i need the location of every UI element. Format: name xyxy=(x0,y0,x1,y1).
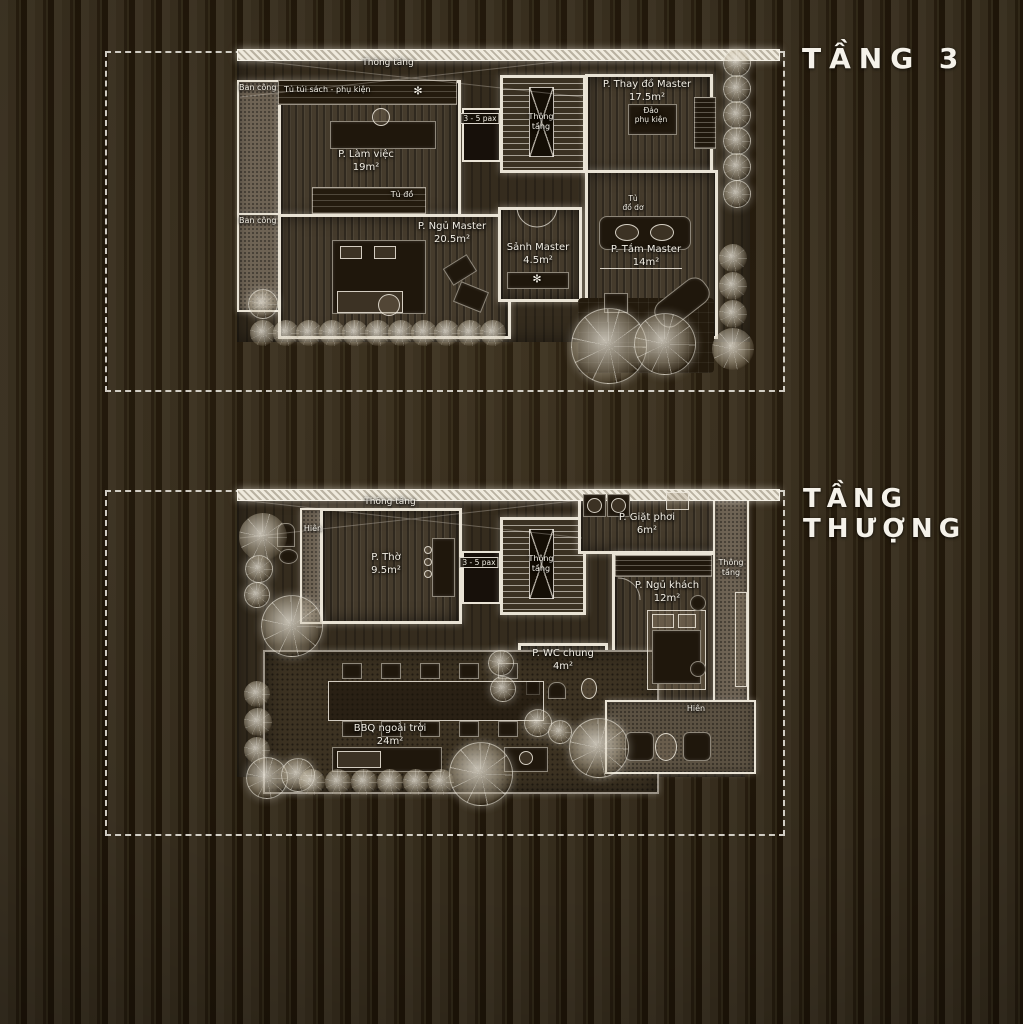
ceiling-fan-icon: ✻ xyxy=(413,85,422,98)
roof-title-line1: TẦNG xyxy=(803,484,966,514)
bush xyxy=(723,101,751,129)
double-door-arc xyxy=(517,207,557,227)
room-altar-name: P. Thờ xyxy=(371,552,401,565)
room-shared-wc-area: 4m² xyxy=(532,661,594,674)
bush xyxy=(723,49,751,77)
bush xyxy=(325,769,351,795)
bush xyxy=(377,769,403,795)
room-master-bath-area: 14m² xyxy=(611,257,681,270)
island-label-l2: phụ kiện xyxy=(635,115,667,124)
dirty-closet-label: Tủ đồ dơ xyxy=(622,194,643,213)
room-altar-label: P. Thờ 9.5m² xyxy=(371,552,401,577)
large-tree xyxy=(634,313,696,375)
dirty-closet-l2: đồ dơ xyxy=(622,203,643,212)
bbq-area-size: 24m² xyxy=(354,736,427,749)
large-tree xyxy=(449,742,513,806)
room-master-hall-area: 4.5m² xyxy=(507,255,569,268)
large-tree xyxy=(569,718,629,778)
room-altar-area: 9.5m² xyxy=(371,565,401,578)
room-work-name: P. Làm việc xyxy=(338,149,394,162)
dirty-closet-l1: Tủ xyxy=(622,194,643,203)
bush xyxy=(719,244,747,272)
stair-label: Thông tầng xyxy=(529,112,554,132)
shaft-label-l1: Thông xyxy=(719,558,744,568)
porch-right-label: Hiên xyxy=(687,704,705,714)
bookshelf-label: Tủ túi sách - phụ kiện xyxy=(284,85,371,95)
roof-title-line2: THƯỢNG xyxy=(803,514,966,544)
ceiling-fan-icon: ✻ xyxy=(532,273,541,286)
poster-background: Thông tầng Ban công Ban công Tủ túi sách… xyxy=(0,0,1023,1024)
bush xyxy=(245,555,273,583)
bush xyxy=(723,127,751,155)
stair-label: Thông tầng xyxy=(529,554,554,574)
room-laundry-name: P. Giặt phơi xyxy=(619,512,675,525)
room-guest-bedroom-area: 12m² xyxy=(635,593,699,606)
room-work-area: 19m² xyxy=(338,162,394,175)
bush xyxy=(719,300,747,328)
bush xyxy=(244,708,272,736)
wardrobe-label: Tủ đồ xyxy=(391,190,413,200)
bbq-area-label: BBQ ngoài trời 24m² xyxy=(354,723,427,748)
bush xyxy=(548,720,572,744)
void-shaft-label: Thông tầng xyxy=(719,558,744,578)
room-master-bath-name: P. Tắm Master xyxy=(611,244,681,257)
roof-title: TẦNG THƯỢNG xyxy=(803,484,966,544)
stair-label-l1: Thông xyxy=(529,554,554,564)
bush xyxy=(490,676,516,702)
accessory-island-label: Đảo phụ kiện xyxy=(635,106,667,125)
balcony-top-label: Ban công xyxy=(239,83,276,93)
stair-label-l1: Thông xyxy=(529,112,554,122)
bush xyxy=(488,650,514,676)
room-master-hall-name: Sảnh Master xyxy=(507,242,569,255)
floor3-void-label: Thông tầng xyxy=(362,58,413,69)
porch-left-label: Hiên xyxy=(304,524,322,534)
balcony-bottom-label: Ban công xyxy=(239,216,276,226)
bush xyxy=(723,75,751,103)
room-guest-bedroom-name: P. Ngủ khách xyxy=(635,580,699,593)
bush xyxy=(723,153,751,181)
elevator-label: 3 - 5 pax xyxy=(460,113,499,124)
stair-label-l2: tầng xyxy=(529,122,554,132)
bush xyxy=(403,769,429,795)
bush xyxy=(299,769,325,795)
room-master-bedroom-area: 20.5m² xyxy=(418,234,486,247)
elevator-label: 3 - 5 pax xyxy=(459,557,498,568)
bush xyxy=(723,180,751,208)
room-guest-bedroom-label: P. Ngủ khách 12m² xyxy=(635,580,699,605)
room-laundry-area: 6m² xyxy=(619,525,675,538)
room-master-bath-label: P. Tắm Master 14m² xyxy=(611,244,681,269)
bush xyxy=(428,769,454,795)
large-tree xyxy=(261,595,323,657)
room-shared-wc-name: P. WC chung xyxy=(532,648,594,661)
stair-label-l2: tầng xyxy=(529,564,554,574)
bush xyxy=(244,681,270,707)
room-master-bedroom-label: P. Ngủ Master 20.5m² xyxy=(418,221,486,246)
island-label-l1: Đảo xyxy=(635,106,667,115)
room-laundry-label: P. Giặt phơi 6m² xyxy=(619,512,675,537)
floor3-title: TẦNG 3 xyxy=(802,42,966,75)
room-shared-wc-label: P. WC chung 4m² xyxy=(532,648,594,673)
bbq-area-name: BBQ ngoài trời xyxy=(354,723,427,736)
bush xyxy=(239,513,287,561)
roof-void-label: Thông tầng xyxy=(364,497,415,508)
shaft-label-l2: tầng xyxy=(719,568,744,578)
tree xyxy=(248,289,278,319)
room-master-closet-label: P. Thay đồ Master 17.5m² xyxy=(603,79,691,104)
room-work-label: P. Làm việc 19m² xyxy=(338,149,394,174)
room-master-closet-name: P. Thay đồ Master xyxy=(603,79,691,92)
bush xyxy=(719,272,747,300)
room-master-closet-area: 17.5m² xyxy=(603,92,691,105)
bush xyxy=(244,582,270,608)
bush xyxy=(351,769,377,795)
room-master-hall-label: Sảnh Master 4.5m² xyxy=(507,242,569,267)
room-master-bedroom-name: P. Ngủ Master xyxy=(418,221,486,234)
